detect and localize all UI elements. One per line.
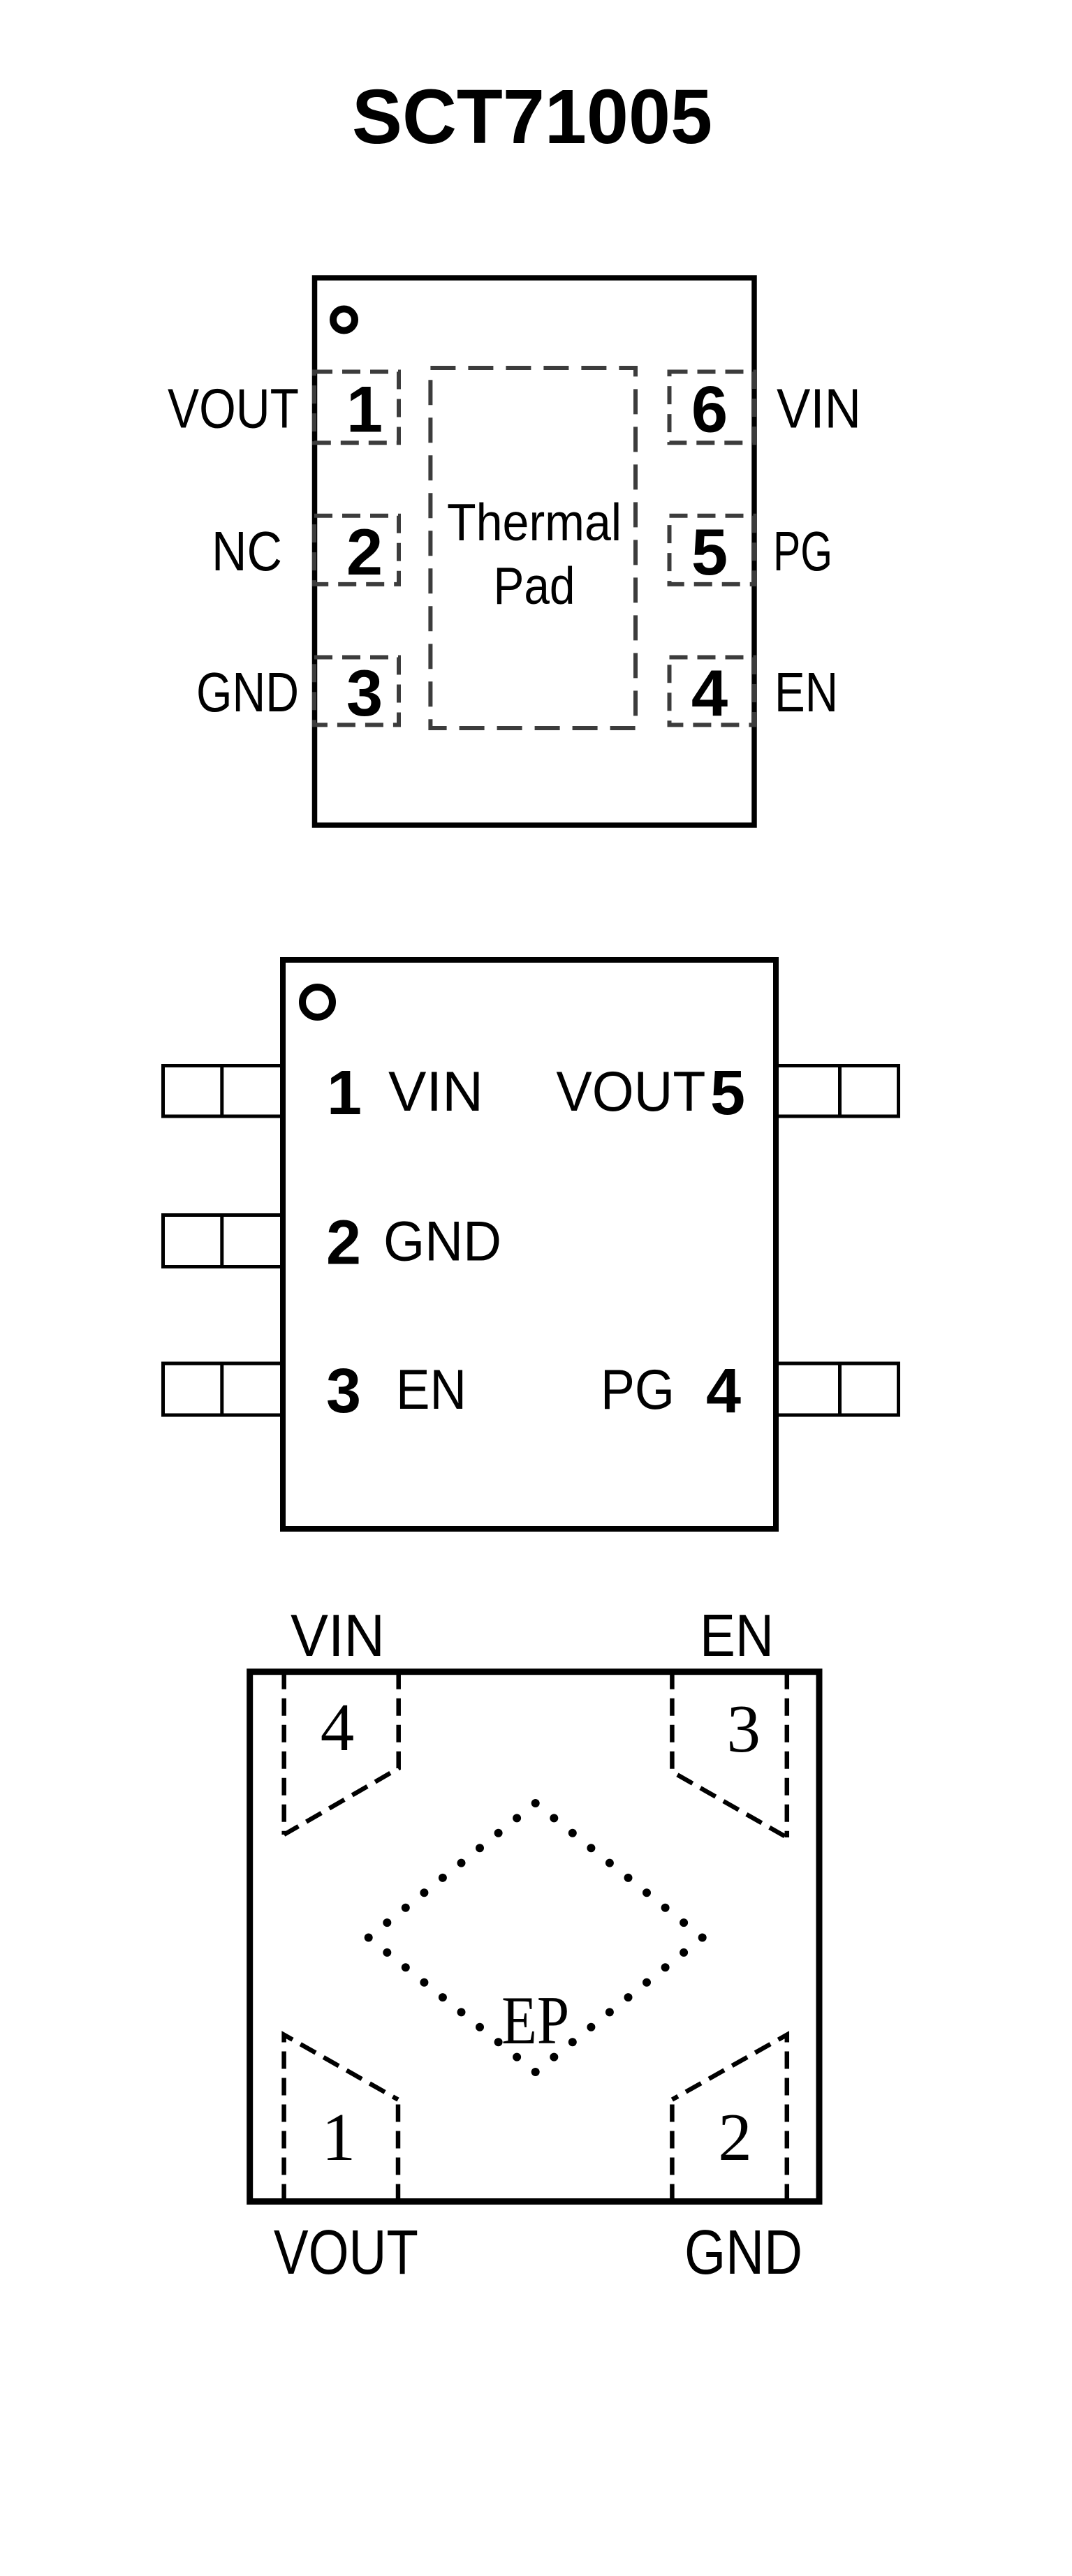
svg-text:2: 2 [718, 2100, 752, 2175]
svg-text:EN: EN [774, 661, 838, 723]
svg-text:3: 3 [326, 1356, 361, 1426]
svg-text:2: 2 [326, 1208, 361, 1278]
svg-text:VIN: VIN [388, 1060, 483, 1123]
svg-text:NC: NC [212, 520, 282, 582]
svg-text:SCT71005: SCT71005 [352, 74, 712, 160]
svg-text:2: 2 [346, 515, 383, 589]
svg-text:PG: PG [773, 520, 832, 582]
svg-text:VOUT: VOUT [168, 377, 299, 439]
svg-text:VOUT: VOUT [556, 1060, 705, 1123]
svg-text:PG: PG [601, 1359, 675, 1421]
svg-text:6: 6 [691, 372, 728, 445]
svg-text:GND: GND [196, 661, 299, 723]
svg-text:EP: EP [501, 1983, 569, 2059]
svg-text:4: 4 [706, 1356, 741, 1426]
svg-text:1: 1 [327, 1058, 362, 1128]
svg-text:4: 4 [321, 1690, 355, 1765]
svg-text:EN: EN [396, 1359, 467, 1421]
svg-text:3: 3 [726, 1692, 761, 1766]
svg-text:1: 1 [346, 372, 383, 445]
svg-text:1: 1 [322, 2100, 356, 2175]
svg-text:VIN: VIN [777, 377, 861, 439]
svg-text:GND: GND [383, 1211, 501, 1273]
svg-text:Thermal: Thermal [447, 493, 622, 552]
svg-text:4: 4 [691, 656, 728, 730]
svg-text:Pad: Pad [494, 556, 575, 615]
svg-text:5: 5 [710, 1058, 745, 1128]
svg-text:5: 5 [691, 515, 728, 589]
svg-text:GND: GND [684, 2218, 802, 2288]
svg-text:EN: EN [700, 1603, 774, 1669]
svg-text:3: 3 [346, 656, 383, 730]
svg-text:VIN: VIN [291, 1603, 385, 1669]
svg-text:VOUT: VOUT [274, 2218, 418, 2288]
